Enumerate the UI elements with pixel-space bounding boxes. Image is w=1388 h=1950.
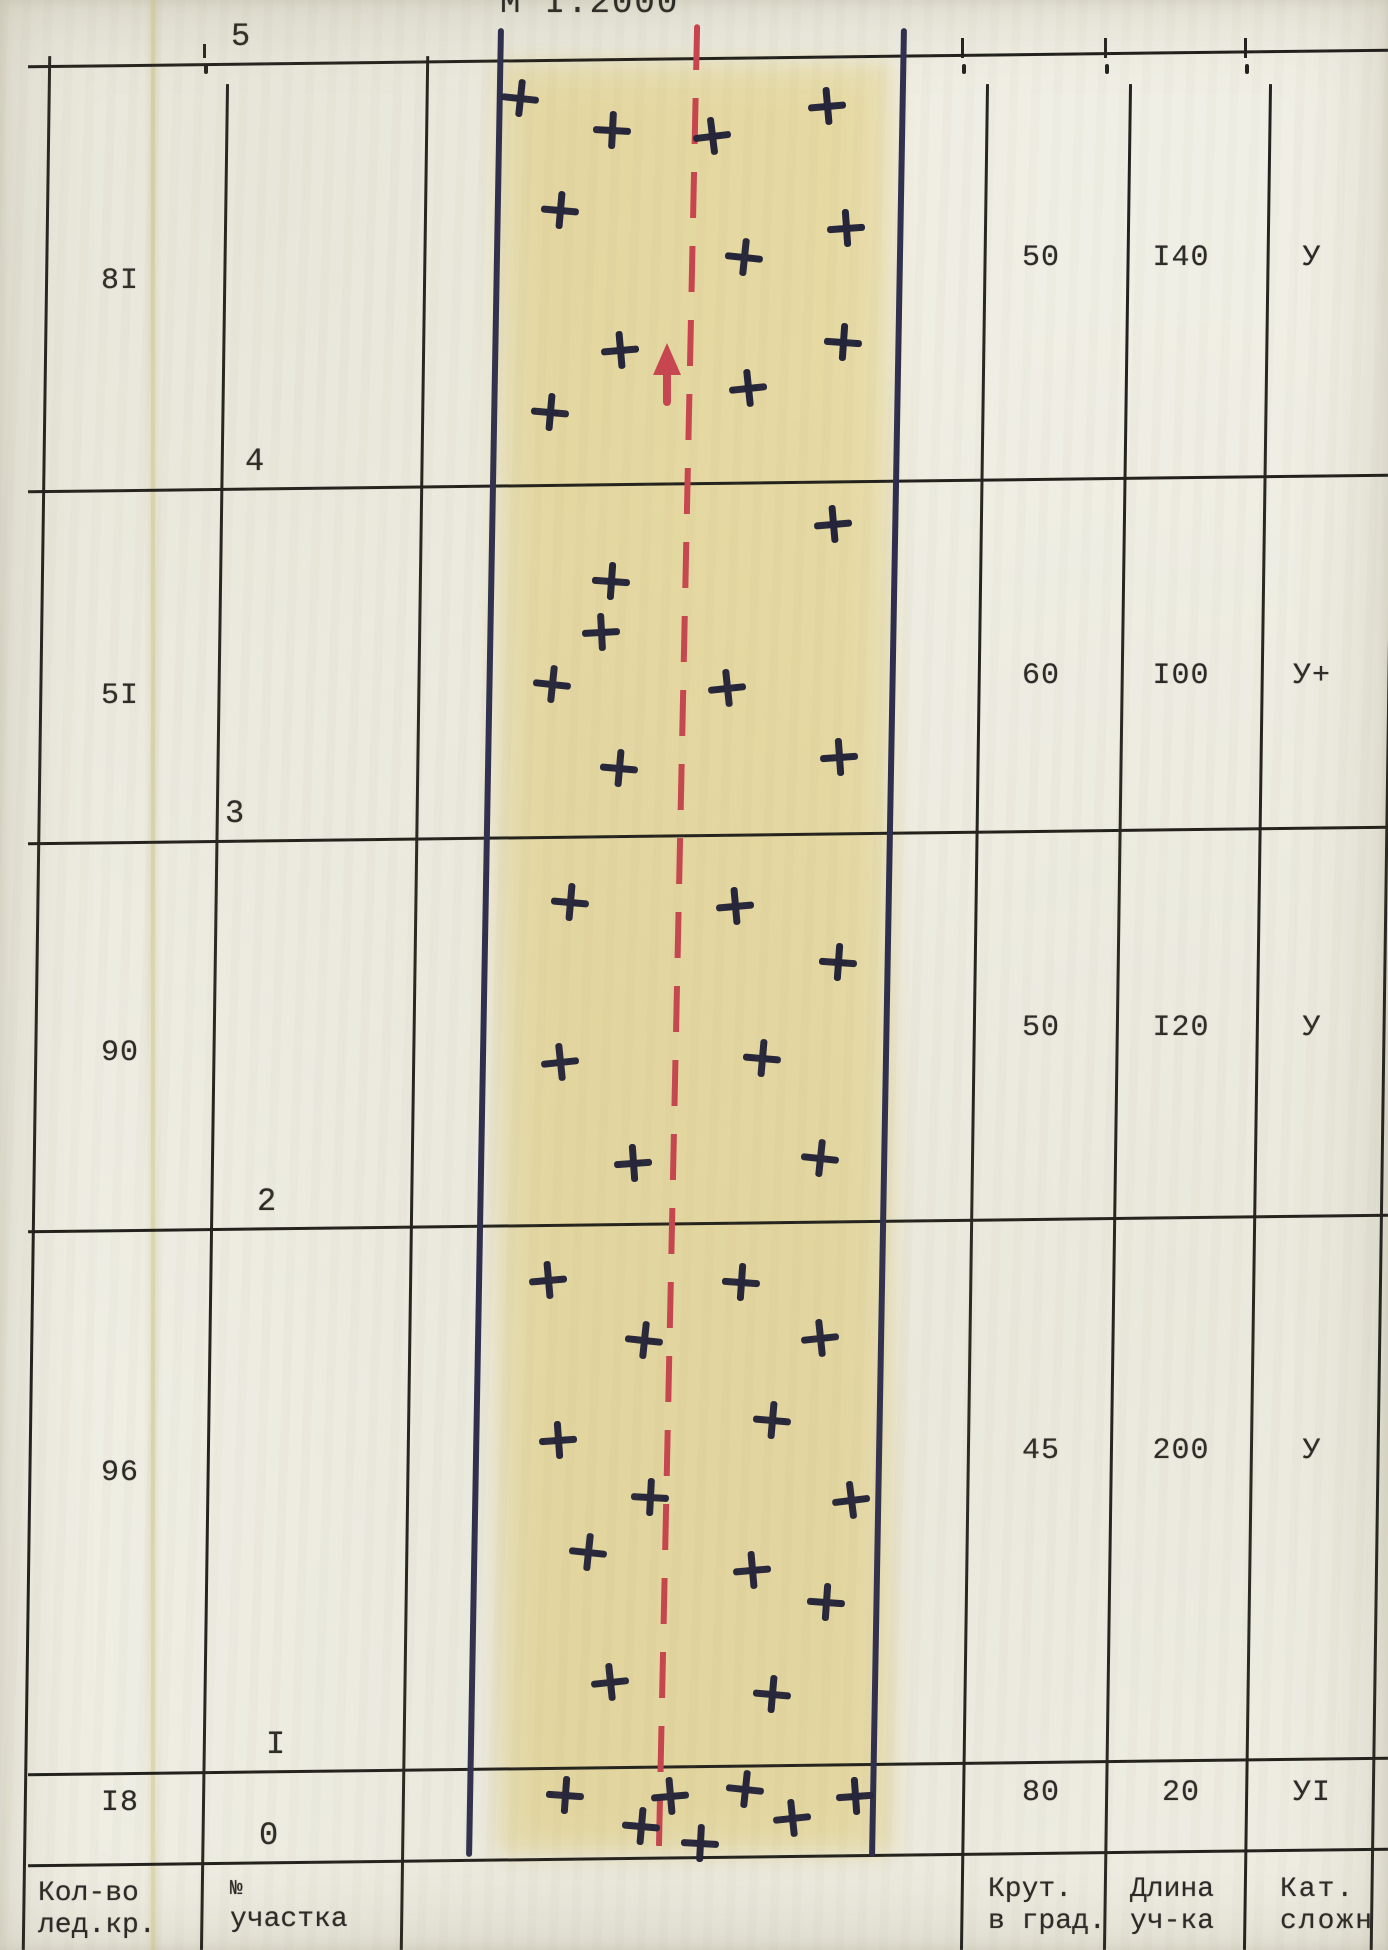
column-line-length-dot (1105, 64, 1109, 74)
header-steepness-line1: Крут. (988, 1874, 1072, 1905)
column-line-section (200, 84, 229, 1950)
route-cross (599, 329, 640, 370)
header-steepness: Крут.в град. (988, 1874, 1106, 1938)
header-steepness-line2: в град. (988, 1906, 1106, 1937)
route-direction-arrow-shaft (663, 370, 671, 406)
route-cross (538, 1420, 579, 1461)
header-ice-line2: лед.кр. (38, 1910, 156, 1941)
route-cross (539, 1041, 581, 1083)
column-line-steepness-dot (962, 64, 966, 74)
route-cross (823, 322, 864, 363)
table-border-right (1370, 42, 1388, 1950)
route-cross (499, 77, 541, 119)
cell-steepness: 45 (972, 1434, 1110, 1468)
route-cross (771, 1797, 813, 1839)
cell-steepness: 60 (972, 659, 1110, 693)
route-cross (806, 1582, 847, 1623)
route-cross (751, 1673, 792, 1714)
tick-label-4: 4 (245, 443, 265, 480)
header-category: Кат.сложн (1280, 1874, 1374, 1938)
route-cross (706, 667, 748, 709)
header-ice-line1: Кол-во (38, 1878, 139, 1909)
route-cross (567, 1531, 609, 1573)
route-cross (751, 1399, 792, 1440)
route-cross (724, 1768, 766, 1810)
route-cross (723, 236, 765, 278)
cell-length: I00 (1112, 659, 1250, 693)
cell-steepness: 80 (972, 1776, 1110, 1810)
header-length-line1: Длина (1130, 1874, 1214, 1905)
cell-steepness: 50 (972, 1011, 1110, 1045)
header-category-line1: Кат. (1280, 1874, 1355, 1905)
route-cross (620, 1805, 661, 1846)
route-cross (741, 1037, 782, 1078)
route-cross (581, 612, 621, 652)
route-cross (818, 942, 859, 983)
route-corridor-highlight-inner (520, 80, 870, 1840)
route-cross (598, 747, 639, 788)
route-cross (830, 1479, 872, 1521)
column-line-diagram (400, 56, 429, 1950)
route-cross (691, 115, 733, 157)
cell-ice-screws: 8I (35, 264, 205, 298)
cell-category: У (1252, 241, 1372, 275)
column-line-category-stub (1244, 38, 1247, 58)
route-cross (680, 1823, 720, 1863)
route-cross (799, 1317, 841, 1359)
numero-icon: № (230, 1878, 243, 1901)
route-cross (527, 1259, 568, 1300)
table-border-left (22, 56, 51, 1950)
route-cross (727, 367, 769, 409)
cell-category: У+ (1252, 659, 1372, 693)
cell-category: У (1252, 1434, 1372, 1468)
cell-ice-screws: 90 (35, 1036, 205, 1070)
route-cross (806, 85, 847, 126)
cell-ice-screws: I8 (35, 1786, 205, 1820)
tick-label-I: I (266, 1726, 286, 1763)
column-line-section-stub (203, 44, 206, 58)
tick-label-3: 3 (225, 795, 245, 832)
route-cross (531, 663, 573, 705)
cell-length: 200 (1112, 1434, 1250, 1468)
header-length-line2: уч-ка (1130, 1906, 1214, 1937)
route-cross (589, 1661, 631, 1703)
route-cross (812, 503, 853, 544)
cell-category: УI (1252, 1776, 1372, 1810)
cell-category: У (1252, 1011, 1372, 1045)
route-cross (549, 881, 590, 922)
header-length: Длинауч-ка (1130, 1874, 1214, 1938)
cell-ice-screws: 96 (35, 1456, 205, 1490)
route-cross (819, 737, 860, 778)
route-cross (714, 885, 755, 926)
route-cross (545, 1775, 586, 1816)
scanned-route-sheet: М I:2000 5432I08I50I40У5I60I00У+9050I20У… (0, 0, 1388, 1950)
route-cross (630, 1477, 670, 1517)
cell-length: I40 (1112, 241, 1250, 275)
route-cross (721, 1262, 762, 1303)
tick-label-2: 2 (257, 1183, 277, 1220)
route-cross (731, 1549, 772, 1590)
cell-length: I20 (1112, 1011, 1250, 1045)
route-cross (826, 208, 867, 249)
tick-label-0: 0 (259, 1817, 279, 1854)
route-cross (613, 1143, 654, 1184)
cell-ice-screws: 5I (35, 679, 205, 713)
route-cross (835, 1776, 876, 1817)
tick-label-5: 5 (231, 18, 251, 55)
route-cross (623, 1319, 665, 1361)
column-line-category-dot (1245, 64, 1249, 74)
header-section-line2: участка (230, 1904, 348, 1935)
header-section-no: №участка (230, 1872, 348, 1936)
route-cross (592, 110, 632, 150)
route-cross (591, 561, 632, 602)
scale-label: М I:2000 (500, 0, 679, 23)
cell-length: 20 (1112, 1776, 1250, 1810)
route-cross (799, 1137, 841, 1179)
header-category-line2: сложн (1280, 1906, 1374, 1937)
cell-steepness: 50 (972, 241, 1110, 275)
route-cross (529, 391, 570, 432)
route-cross (539, 189, 580, 230)
header-ice-screws: Кол-волед.кр. (38, 1878, 156, 1942)
